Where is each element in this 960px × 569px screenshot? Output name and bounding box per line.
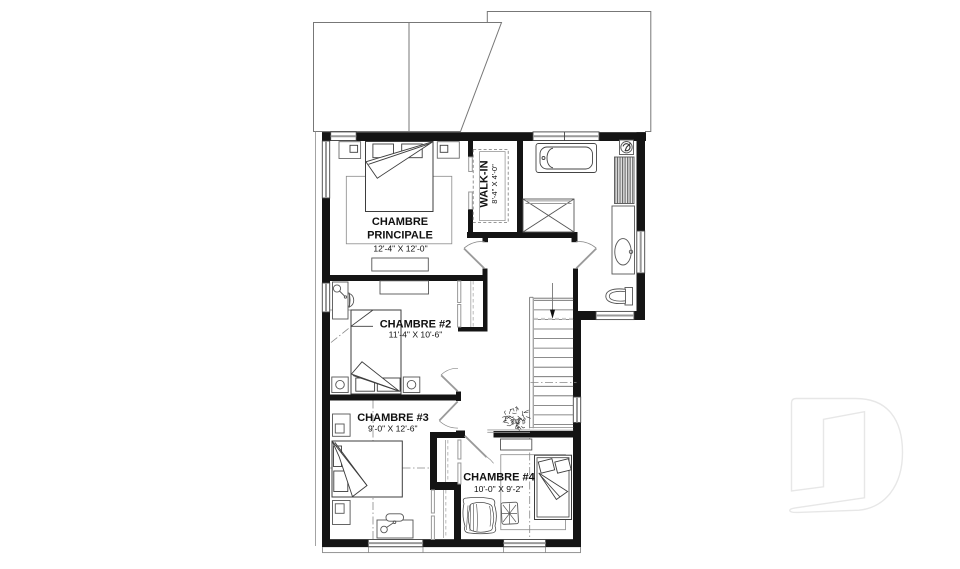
svg-text:8'-4" X 4'-0": 8'-4" X 4'-0" bbox=[490, 164, 499, 204]
svg-text:CHAMBRE #4: CHAMBRE #4 bbox=[463, 471, 535, 483]
svg-text:10'-0" X 9'-2": 10'-0" X 9'-2" bbox=[474, 484, 524, 494]
svg-text:PRINCIPALE: PRINCIPALE bbox=[367, 230, 433, 242]
svg-text:9'-0" X 12'-6": 9'-0" X 12'-6" bbox=[368, 424, 418, 434]
svg-text:WALK-IN: WALK-IN bbox=[478, 160, 490, 207]
svg-text:CHAMBRE #3: CHAMBRE #3 bbox=[357, 412, 429, 424]
svg-text:CHAMBRE: CHAMBRE bbox=[372, 216, 428, 228]
svg-text:12'-4" X 12'-0": 12'-4" X 12'-0" bbox=[373, 244, 427, 254]
svg-text:11'-4" X 10'-6": 11'-4" X 10'-6" bbox=[389, 330, 443, 340]
